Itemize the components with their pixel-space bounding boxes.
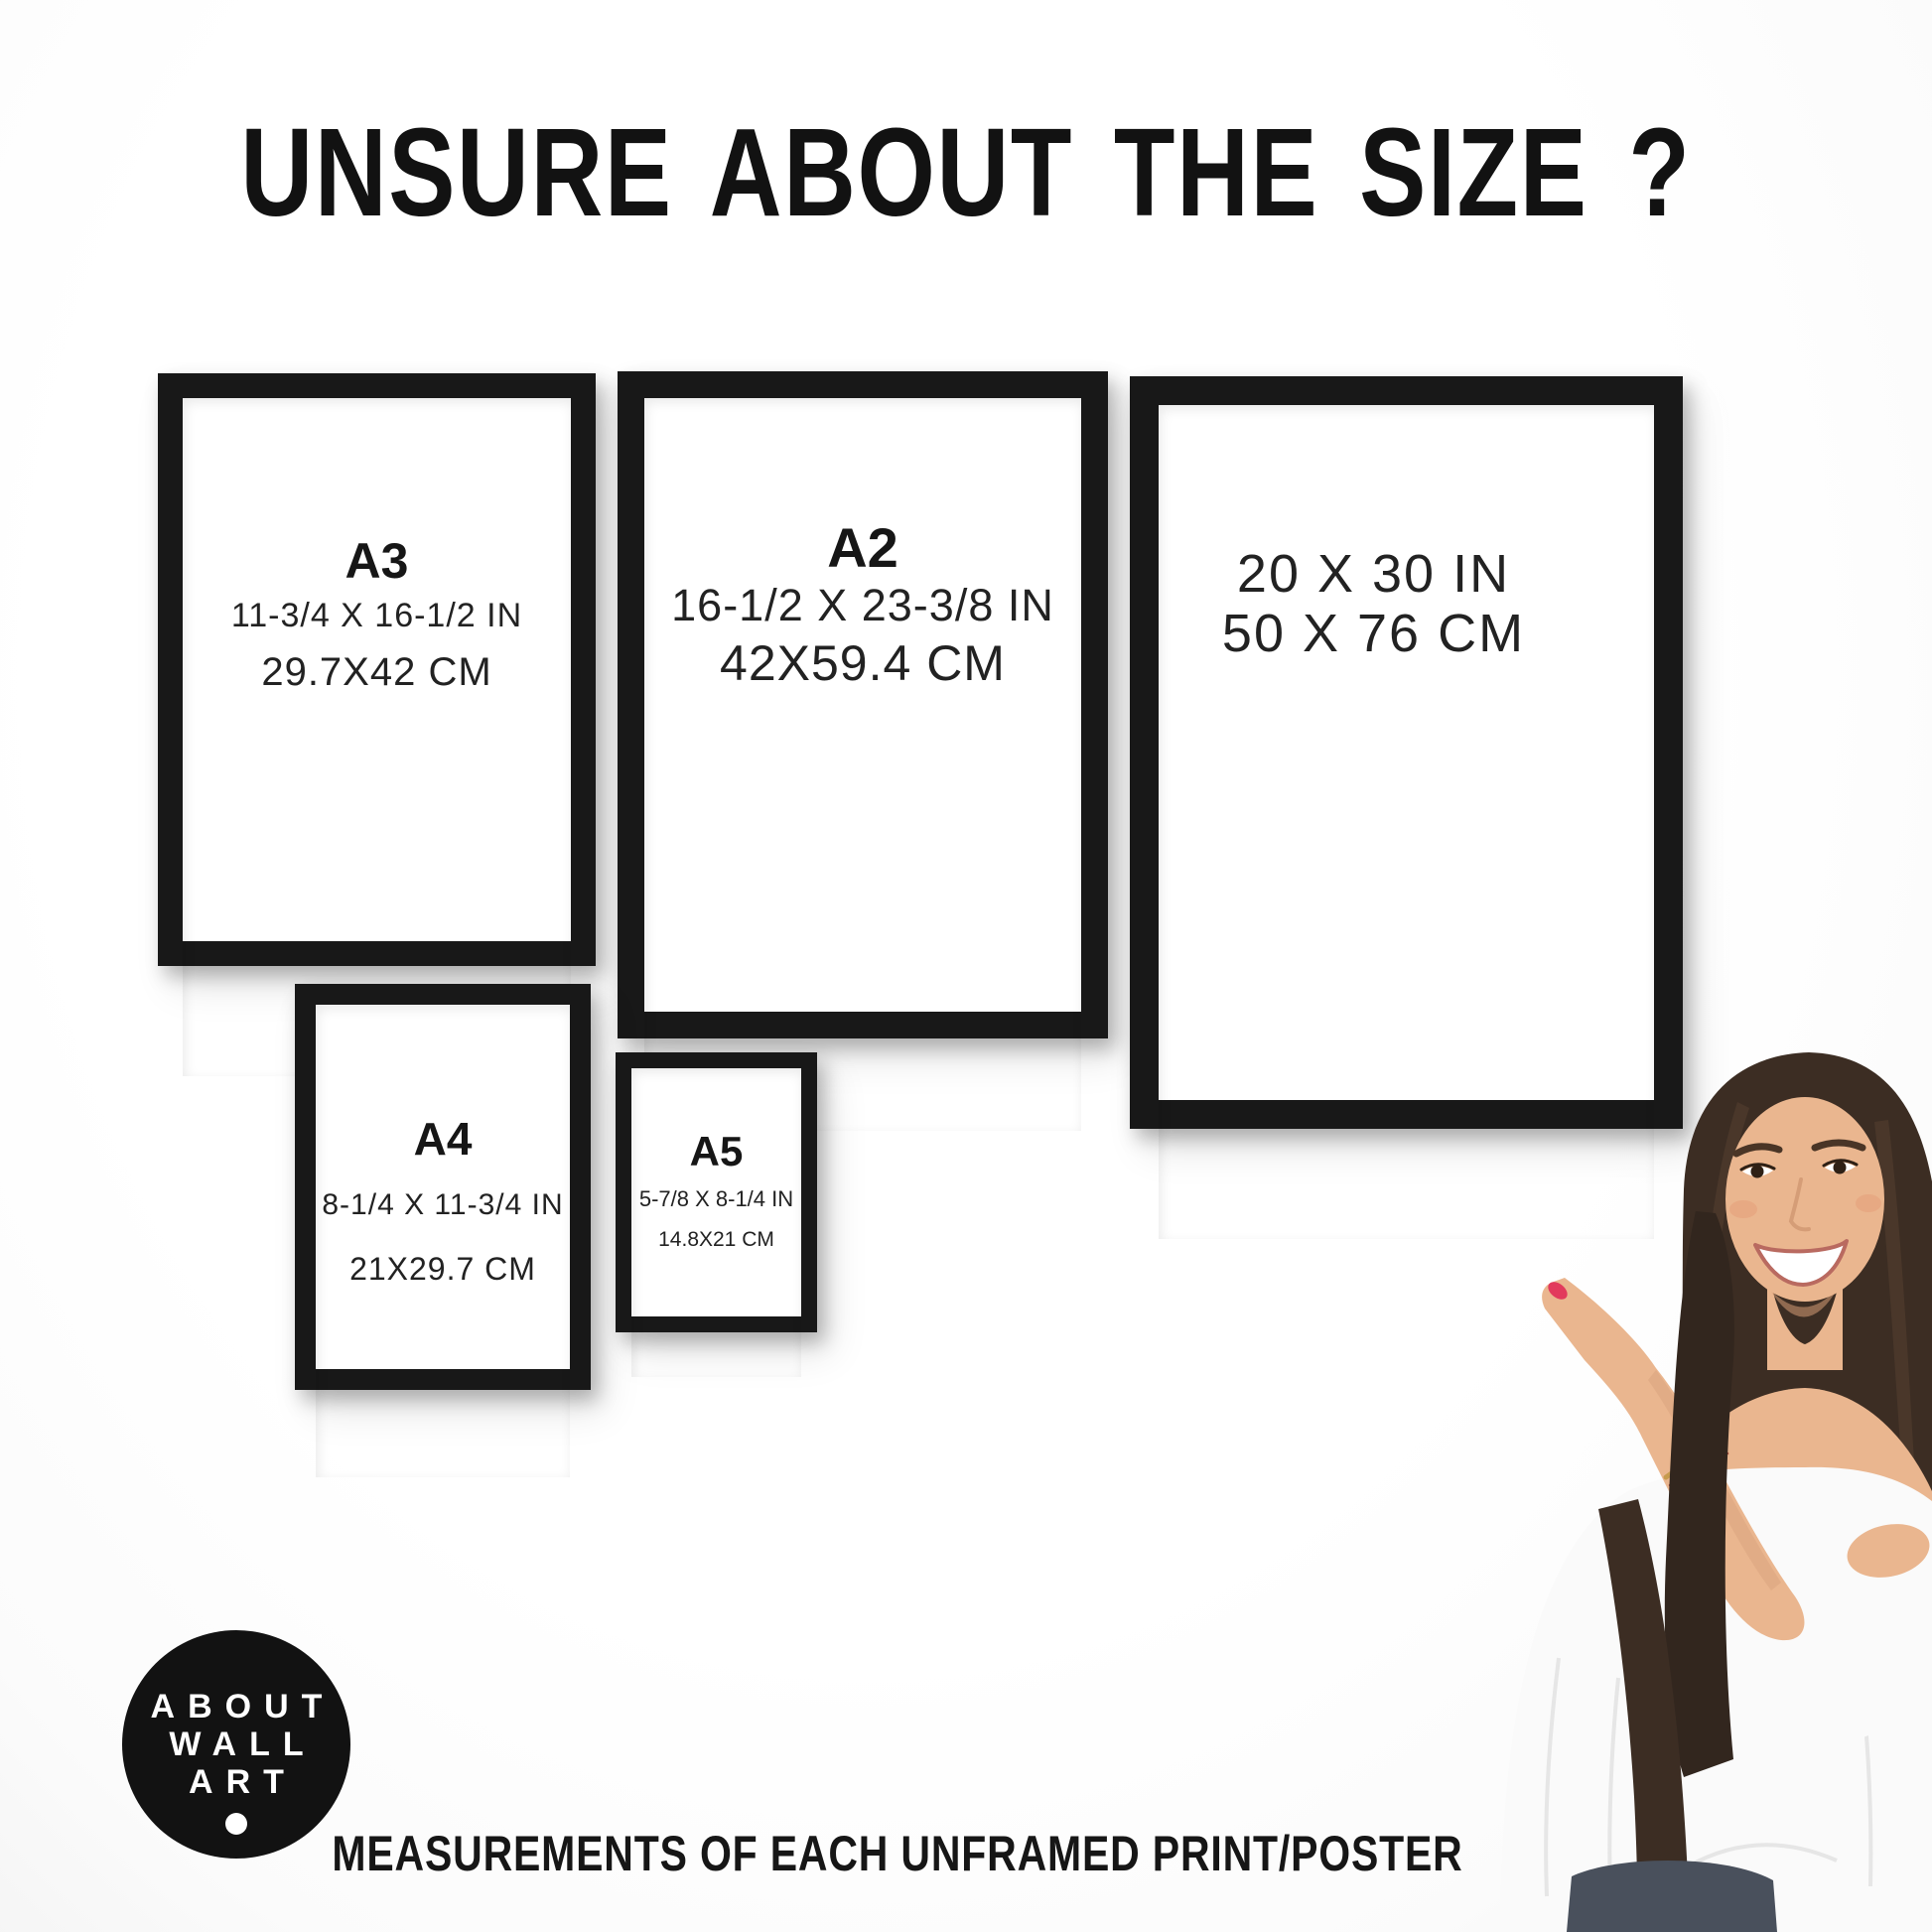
frame-a4-size-cm: 21X29.7 CM [349,1250,536,1288]
frame-a2-mat: A2 16-1/2 X 23-3/8 IN 42X59.4 CM [644,398,1081,1131]
bottom-caption: MEASUREMENTS OF EACH UNFRAMED PRINT/POST… [332,1825,1462,1882]
frame-a5-size-cm: 14.8X21 CM [658,1227,774,1252]
woman-hair-strand-left [1665,1211,1734,1777]
frame-a2-size-cm: 42X59.4 CM [720,634,1006,692]
woman-jeans [1567,1861,1777,1932]
frame-a5-label: A5 [690,1129,744,1174]
frame-a3: A3 11-3/4 X 16-1/2 IN 29.7X42 CM [158,373,596,966]
brand-logo-dot-icon [225,1813,247,1835]
frame-20x30-size-cm: 50 X 76 CM [1222,604,1525,663]
frame-a3-size-inches: 11-3/4 X 16-1/2 IN [231,596,522,635]
frame-a5-mat: A5 5-7/8 X 8-1/4 IN 14.8X21 CM [631,1068,801,1377]
frame-a5: A5 5-7/8 X 8-1/4 IN 14.8X21 CM [616,1052,817,1332]
brand-logo-line: WALL [156,1725,316,1763]
brand-logo-line: ART [176,1763,297,1801]
brand-logo: ABOUT WALL ART [122,1630,350,1859]
frame-a2: A2 16-1/2 X 23-3/8 IN 42X59.4 CM [618,371,1108,1038]
frame-a3-label: A3 [345,533,409,589]
frame-a4-size-inches: 8-1/4 X 11-3/4 IN [322,1187,563,1223]
woman-eye-right [1834,1162,1847,1174]
size-guide-poster: UNSURE ABOUT THE SIZE ? A3 11-3/4 X 16-1… [0,0,1932,1932]
frame-a2-size-inches: 16-1/2 X 23-3/8 IN [671,580,1054,631]
frame-20x30: 20 X 30 IN 50 X 76 CM [1130,376,1683,1129]
brand-logo-line: ABOUT [138,1688,336,1725]
frame-a4-mat: A4 8-1/4 X 11-3/4 IN 21X29.7 CM [316,1005,570,1477]
frame-a3-size-cm: 29.7X42 CM [261,649,491,695]
frame-a2-label: A2 [827,517,898,579]
frame-a3-mat: A3 11-3/4 X 16-1/2 IN 29.7X42 CM [183,398,571,1076]
frame-a4: A4 8-1/4 X 11-3/4 IN 21X29.7 CM [295,984,591,1390]
woman-eye-left [1751,1166,1764,1178]
page-title: UNSURE ABOUT THE SIZE ? [194,102,1739,241]
frame-a4-label: A4 [414,1113,473,1165]
frame-a5-size-inches: 5-7/8 X 8-1/4 IN [639,1186,793,1212]
frame-20x30-size-inches: 20 X 30 IN [1237,544,1510,604]
woman-pointing-photo [1440,1042,1932,1932]
